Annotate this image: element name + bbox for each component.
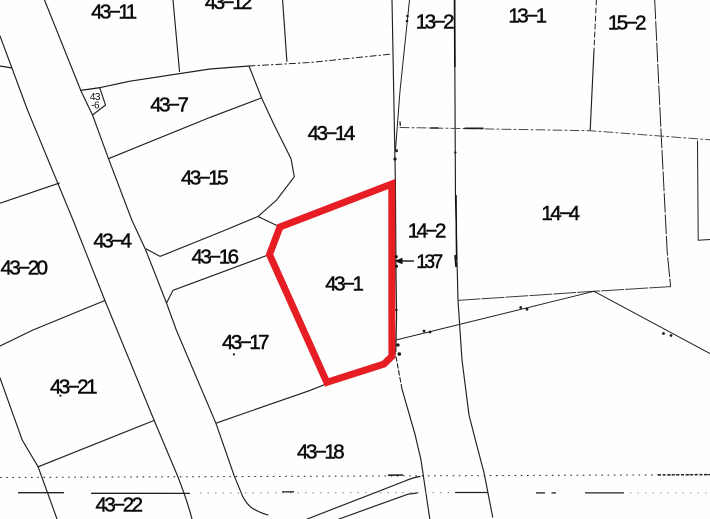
svg-text:43−18: 43−18 xyxy=(297,441,344,464)
svg-text:43−20: 43−20 xyxy=(0,257,47,280)
svg-text:43−7: 43−7 xyxy=(150,93,188,116)
svg-text:43−22: 43−22 xyxy=(95,493,142,516)
svg-text:43−1: 43−1 xyxy=(325,272,363,295)
svg-text:43−15: 43−15 xyxy=(181,167,228,190)
svg-text:14−4: 14−4 xyxy=(541,202,579,225)
svg-text:14−2: 14−2 xyxy=(408,220,446,243)
svg-text:43−17: 43−17 xyxy=(222,331,269,354)
svg-text:13−1: 13−1 xyxy=(508,5,546,28)
svg-text:137: 137 xyxy=(416,252,442,273)
svg-text:13−2: 13−2 xyxy=(416,11,454,34)
svg-text:15−2: 15−2 xyxy=(608,12,646,35)
svg-text:43−21: 43−21 xyxy=(50,375,97,398)
svg-text:43−11: 43−11 xyxy=(91,0,137,23)
svg-text:43−4: 43−4 xyxy=(93,230,131,253)
svg-text:43−16: 43−16 xyxy=(191,246,238,269)
svg-text:43−12: 43−12 xyxy=(205,0,252,14)
svg-text:43−14: 43−14 xyxy=(308,122,355,145)
svg-text:-6: -6 xyxy=(91,100,100,111)
